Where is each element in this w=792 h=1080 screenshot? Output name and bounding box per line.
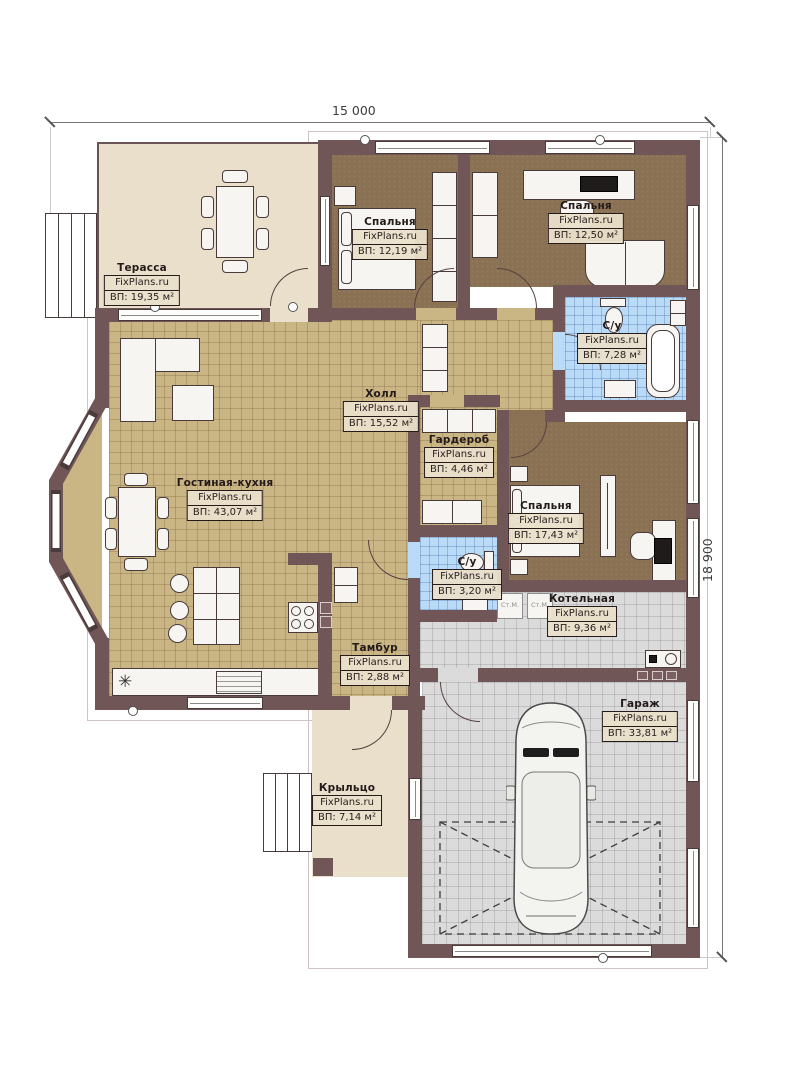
chair xyxy=(201,228,214,250)
room-name: Гардероб xyxy=(424,434,494,446)
watermark: FixPlans.ru xyxy=(353,230,427,245)
room-area: ВП: 7,28 м² xyxy=(578,349,646,363)
tv-console xyxy=(600,475,616,557)
room-area: ВП: 9,36 м² xyxy=(548,622,616,636)
room-area: ВП: 43,07 м² xyxy=(188,506,262,520)
room-name: Гараж xyxy=(602,698,678,710)
watermark: FixPlans.ru xyxy=(509,514,583,529)
room-area: ВП: 2,88 м² xyxy=(341,671,409,685)
bathtub-inner xyxy=(651,330,675,392)
wardrobe-shelving xyxy=(422,324,448,392)
stove-burner xyxy=(304,619,314,629)
washing-machine-label: Ст.М. xyxy=(497,601,523,609)
wall xyxy=(408,700,422,958)
chair xyxy=(256,196,269,218)
island-line xyxy=(194,619,239,620)
door-opening xyxy=(416,308,456,320)
wall xyxy=(553,285,686,297)
window xyxy=(687,700,699,782)
watermark: FixPlans.ru xyxy=(548,607,616,622)
room-label-bedroom-3: Спальня FixPlans.ru ВП: 17,43 м² xyxy=(508,500,584,544)
room-label-bedroom-1: Спальня FixPlans.ru ВП: 12,19 м² xyxy=(352,216,428,260)
bay-window xyxy=(40,392,112,650)
shelf-line xyxy=(447,410,448,432)
vent-block xyxy=(652,671,663,680)
room-name: Спальня xyxy=(352,216,428,228)
dishwasher xyxy=(216,671,262,694)
watermark: FixPlans.ru xyxy=(188,491,262,506)
vent-circle xyxy=(360,135,370,145)
room-name: Терасса xyxy=(104,262,180,274)
shelf-line xyxy=(452,501,453,523)
chair xyxy=(222,170,248,183)
wall xyxy=(408,525,497,537)
nightstand xyxy=(510,466,528,482)
shelf-line xyxy=(473,215,497,216)
wall xyxy=(95,308,109,408)
shelf-line xyxy=(423,347,447,348)
coffee-table xyxy=(172,385,214,421)
desk xyxy=(523,170,635,200)
vent-block xyxy=(666,671,677,680)
window xyxy=(687,518,699,598)
window xyxy=(409,778,421,820)
window xyxy=(687,848,699,928)
watermark: FixPlans.ru xyxy=(344,402,418,417)
window xyxy=(375,141,490,154)
island-line xyxy=(194,593,239,594)
chair xyxy=(222,260,248,273)
watermark: FixPlans.ru xyxy=(603,712,677,727)
watermark: FixPlans.ru xyxy=(105,276,179,291)
step-line xyxy=(287,774,288,851)
chair xyxy=(157,497,169,519)
garage-door xyxy=(452,945,652,957)
stove-burner xyxy=(291,606,301,616)
island-line xyxy=(216,568,217,644)
shelf-line xyxy=(433,238,456,239)
watermark: FixPlans.ru xyxy=(433,570,501,585)
extension-line xyxy=(700,957,723,958)
room-area: ВП: 17,43 м² xyxy=(509,529,583,543)
door-opening xyxy=(438,668,478,682)
vent-circle xyxy=(595,135,605,145)
room-name: Спальня xyxy=(508,500,584,512)
room-label-garage: Гараж FixPlans.ru ВП: 33,81 м² xyxy=(602,698,678,742)
watermark: FixPlans.ru xyxy=(578,334,646,349)
watermark: FixPlans.ru xyxy=(549,214,623,229)
vent-circle xyxy=(288,302,298,312)
chimney-block xyxy=(320,616,332,628)
bed-line xyxy=(625,242,626,286)
room-label-bedroom-2: Спальня FixPlans.ru ВП: 12,50 м² xyxy=(548,200,624,244)
room-name: Спальня xyxy=(548,200,624,212)
dimension-line-top xyxy=(50,122,711,123)
door-opening xyxy=(430,395,464,407)
shelf-line xyxy=(671,313,685,314)
door-opening xyxy=(408,542,420,578)
room-label-porch: Крыльцо FixPlans.ru ВП: 7,14 м² xyxy=(312,782,382,826)
room-area: ВП: 7,14 м² xyxy=(313,811,381,825)
room-name: С/у xyxy=(432,556,502,568)
bar-stool xyxy=(168,624,187,643)
room-area: ВП: 12,19 м² xyxy=(353,245,427,259)
room-label-bathroom-2: С/у FixPlans.ru ВП: 3,20 м² xyxy=(432,556,502,600)
room-name: Холл xyxy=(343,388,419,400)
room-name: Котельная xyxy=(547,593,617,605)
door-opening xyxy=(553,332,565,370)
room-label-boiler: Котельная FixPlans.ru ВП: 9,36 м² xyxy=(547,593,617,637)
chair xyxy=(124,473,148,486)
room-label-terrace: Терасса FixPlans.ru ВП: 19,35 м² xyxy=(104,262,180,306)
car xyxy=(506,700,596,938)
floor-plan: 15 000 18 900 xyxy=(0,0,792,1080)
shelf-line xyxy=(433,205,456,206)
room-name: Тамбур xyxy=(340,642,410,654)
room-area: ВП: 33,81 м² xyxy=(603,727,677,741)
chair xyxy=(157,528,169,550)
window xyxy=(320,196,330,266)
room-label-hall: Холл FixPlans.ru ВП: 15,52 м² xyxy=(343,388,419,432)
room-label-living-kitchen: Гостиная-кухня FixPlans.ru ВП: 43,07 м² xyxy=(177,477,274,521)
watermark: FixPlans.ru xyxy=(341,656,409,671)
wall xyxy=(408,610,497,622)
wall xyxy=(497,580,686,592)
bar-stool xyxy=(170,574,189,593)
window xyxy=(545,141,635,154)
chair xyxy=(201,196,214,218)
sofa xyxy=(120,338,156,422)
sink-icon: ✳ xyxy=(118,674,132,691)
shelf-line xyxy=(423,370,447,371)
vent-circle xyxy=(598,953,608,963)
watermark: FixPlans.ru xyxy=(425,448,493,463)
step-line xyxy=(71,214,72,317)
dimension-height-label: 18 900 xyxy=(700,512,715,582)
room-name: С/у xyxy=(577,320,647,332)
extension-line xyxy=(50,127,51,213)
room-name: Крыльцо xyxy=(312,782,382,794)
door-opening xyxy=(497,308,535,320)
pillow xyxy=(341,250,352,284)
vent-block xyxy=(637,671,648,680)
nightstand xyxy=(510,559,528,575)
room-label-bathroom-1: С/у FixPlans.ru ВП: 7,28 м² xyxy=(577,320,647,364)
wall xyxy=(553,400,686,412)
window xyxy=(118,309,262,321)
room-label-wardrobe: Гардероб FixPlans.ru ВП: 4,46 м² xyxy=(424,434,494,478)
room-label-vestibule: Тамбур FixPlans.ru ВП: 2,88 м² xyxy=(340,642,410,686)
porch-pillar xyxy=(313,858,333,876)
laptop xyxy=(580,176,618,192)
wall xyxy=(288,553,332,565)
room-name: Гостиная-кухня xyxy=(177,477,274,489)
room-area: ВП: 3,20 м² xyxy=(433,585,501,599)
room-area: ВП: 15,52 м² xyxy=(344,417,418,431)
watermark: FixPlans.ru xyxy=(313,796,381,811)
window xyxy=(687,205,699,290)
door-opening xyxy=(509,410,545,422)
dimension-width-label: 15 000 xyxy=(332,103,376,118)
chair xyxy=(256,228,269,250)
step-line xyxy=(275,774,276,851)
room-area: ВП: 12,50 м² xyxy=(549,229,623,243)
shelf-line xyxy=(472,410,473,432)
dining-table xyxy=(118,487,156,557)
nightstand xyxy=(334,186,356,206)
extension-line xyxy=(700,137,723,138)
sink-bowl xyxy=(665,653,677,665)
dimension-line-right xyxy=(722,137,723,957)
pillow xyxy=(341,212,352,246)
step-line xyxy=(84,214,85,317)
dining-table xyxy=(216,186,254,258)
step-line xyxy=(58,214,59,317)
room-area: ВП: 4,46 м² xyxy=(425,463,493,477)
wall xyxy=(458,154,470,318)
shelf-line xyxy=(433,271,456,272)
chair xyxy=(124,558,148,571)
stove-burner xyxy=(291,619,301,629)
room-area: ВП: 19,35 м² xyxy=(105,291,179,305)
toilet-tank xyxy=(600,298,626,307)
window xyxy=(187,697,263,709)
shelf-line xyxy=(335,585,357,586)
bar-stool xyxy=(170,601,189,620)
laptop xyxy=(654,538,672,564)
wardrobe-shelving xyxy=(422,409,496,433)
desk-chair xyxy=(630,532,656,560)
step-line xyxy=(299,774,300,851)
boiler-unit xyxy=(649,655,657,663)
window xyxy=(687,420,699,504)
vent-circle xyxy=(128,706,138,716)
door-opening xyxy=(350,696,392,710)
washbasin xyxy=(604,380,636,398)
chimney-block xyxy=(320,602,332,614)
stove-burner xyxy=(304,606,314,616)
tv-line xyxy=(607,483,608,549)
